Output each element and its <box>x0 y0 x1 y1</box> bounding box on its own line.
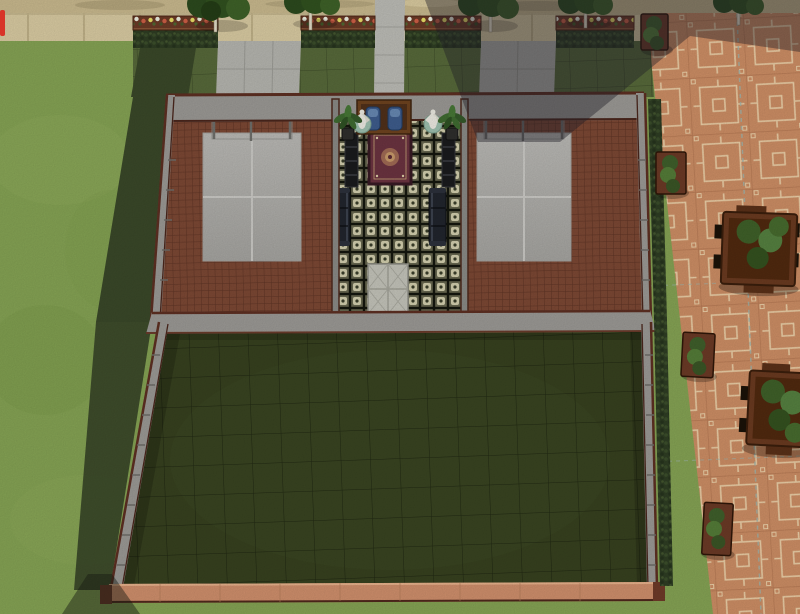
ui-fragment-red[interactable] <box>0 10 5 36</box>
texture-grain <box>0 0 800 614</box>
game-viewport <box>0 0 800 614</box>
